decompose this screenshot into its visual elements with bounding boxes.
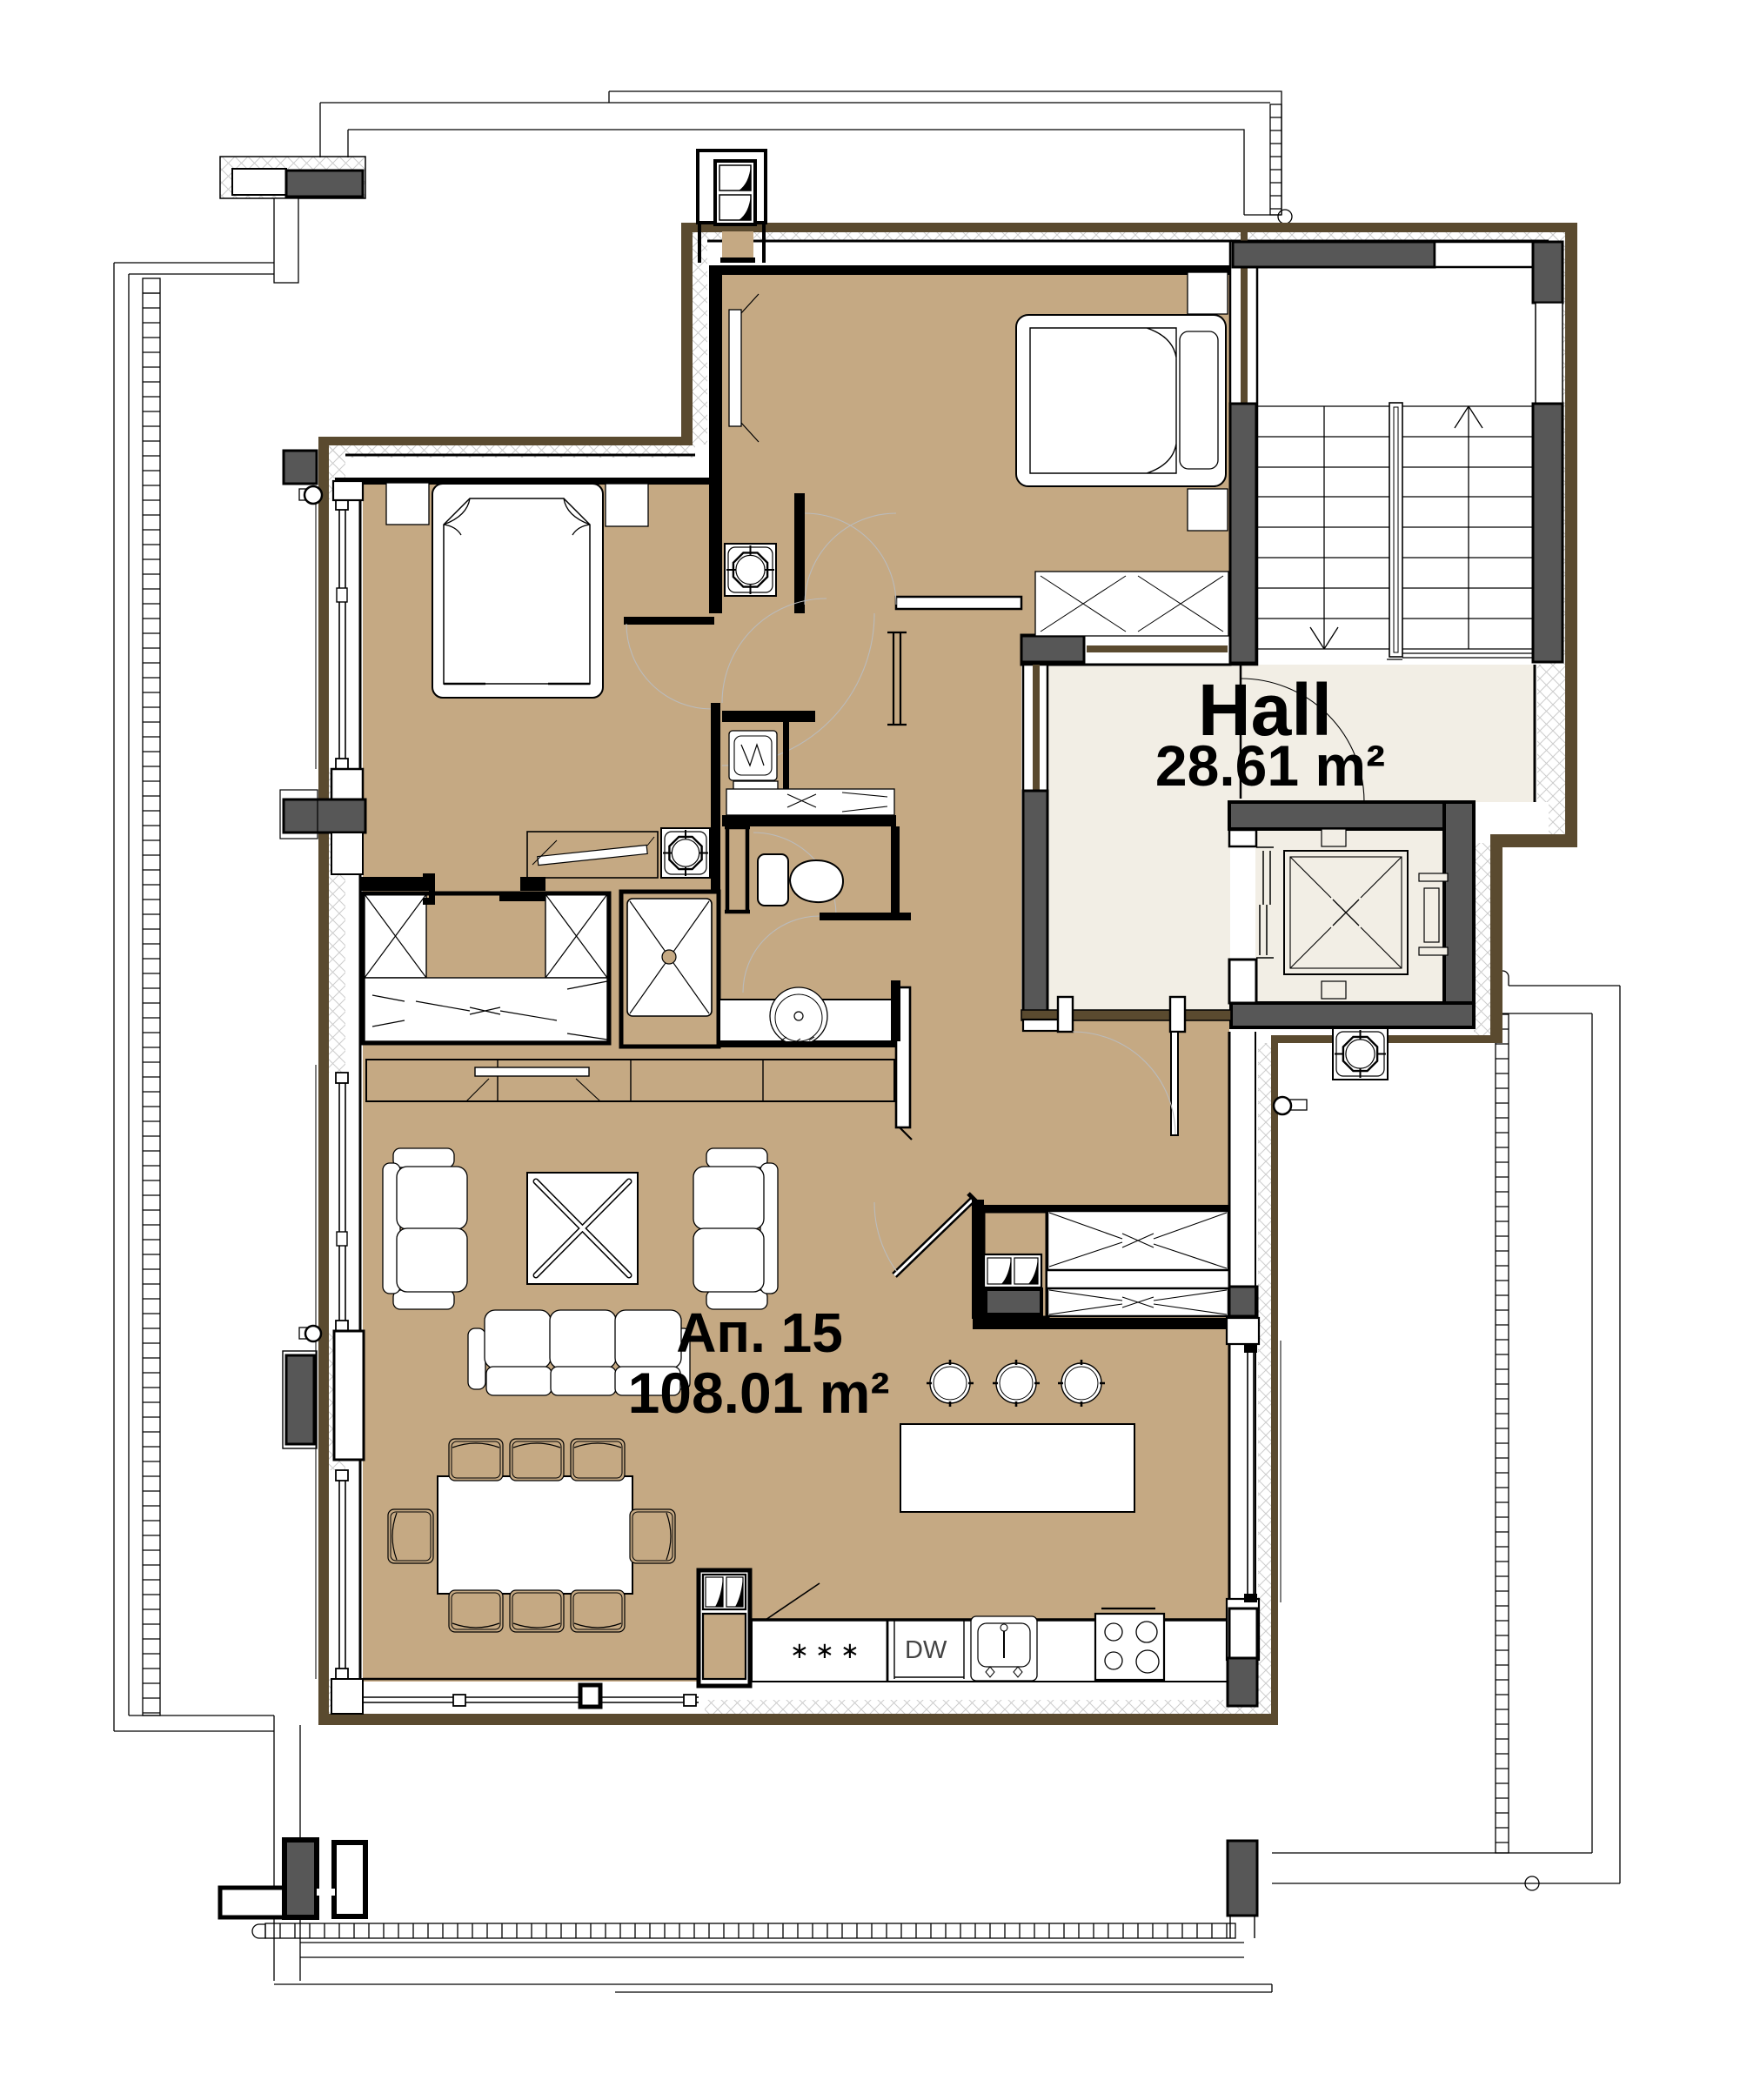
svg-text:Ап. 15: Ап. 15 bbox=[676, 1301, 843, 1364]
svg-text:28.61 m²: 28.61 m² bbox=[1155, 733, 1385, 798]
svg-text:108.01 m²: 108.01 m² bbox=[628, 1361, 890, 1425]
svg-text:DW: DW bbox=[905, 1636, 947, 1664]
svg-text:∗ ∗ ∗: ∗ ∗ ∗ bbox=[790, 1637, 860, 1663]
